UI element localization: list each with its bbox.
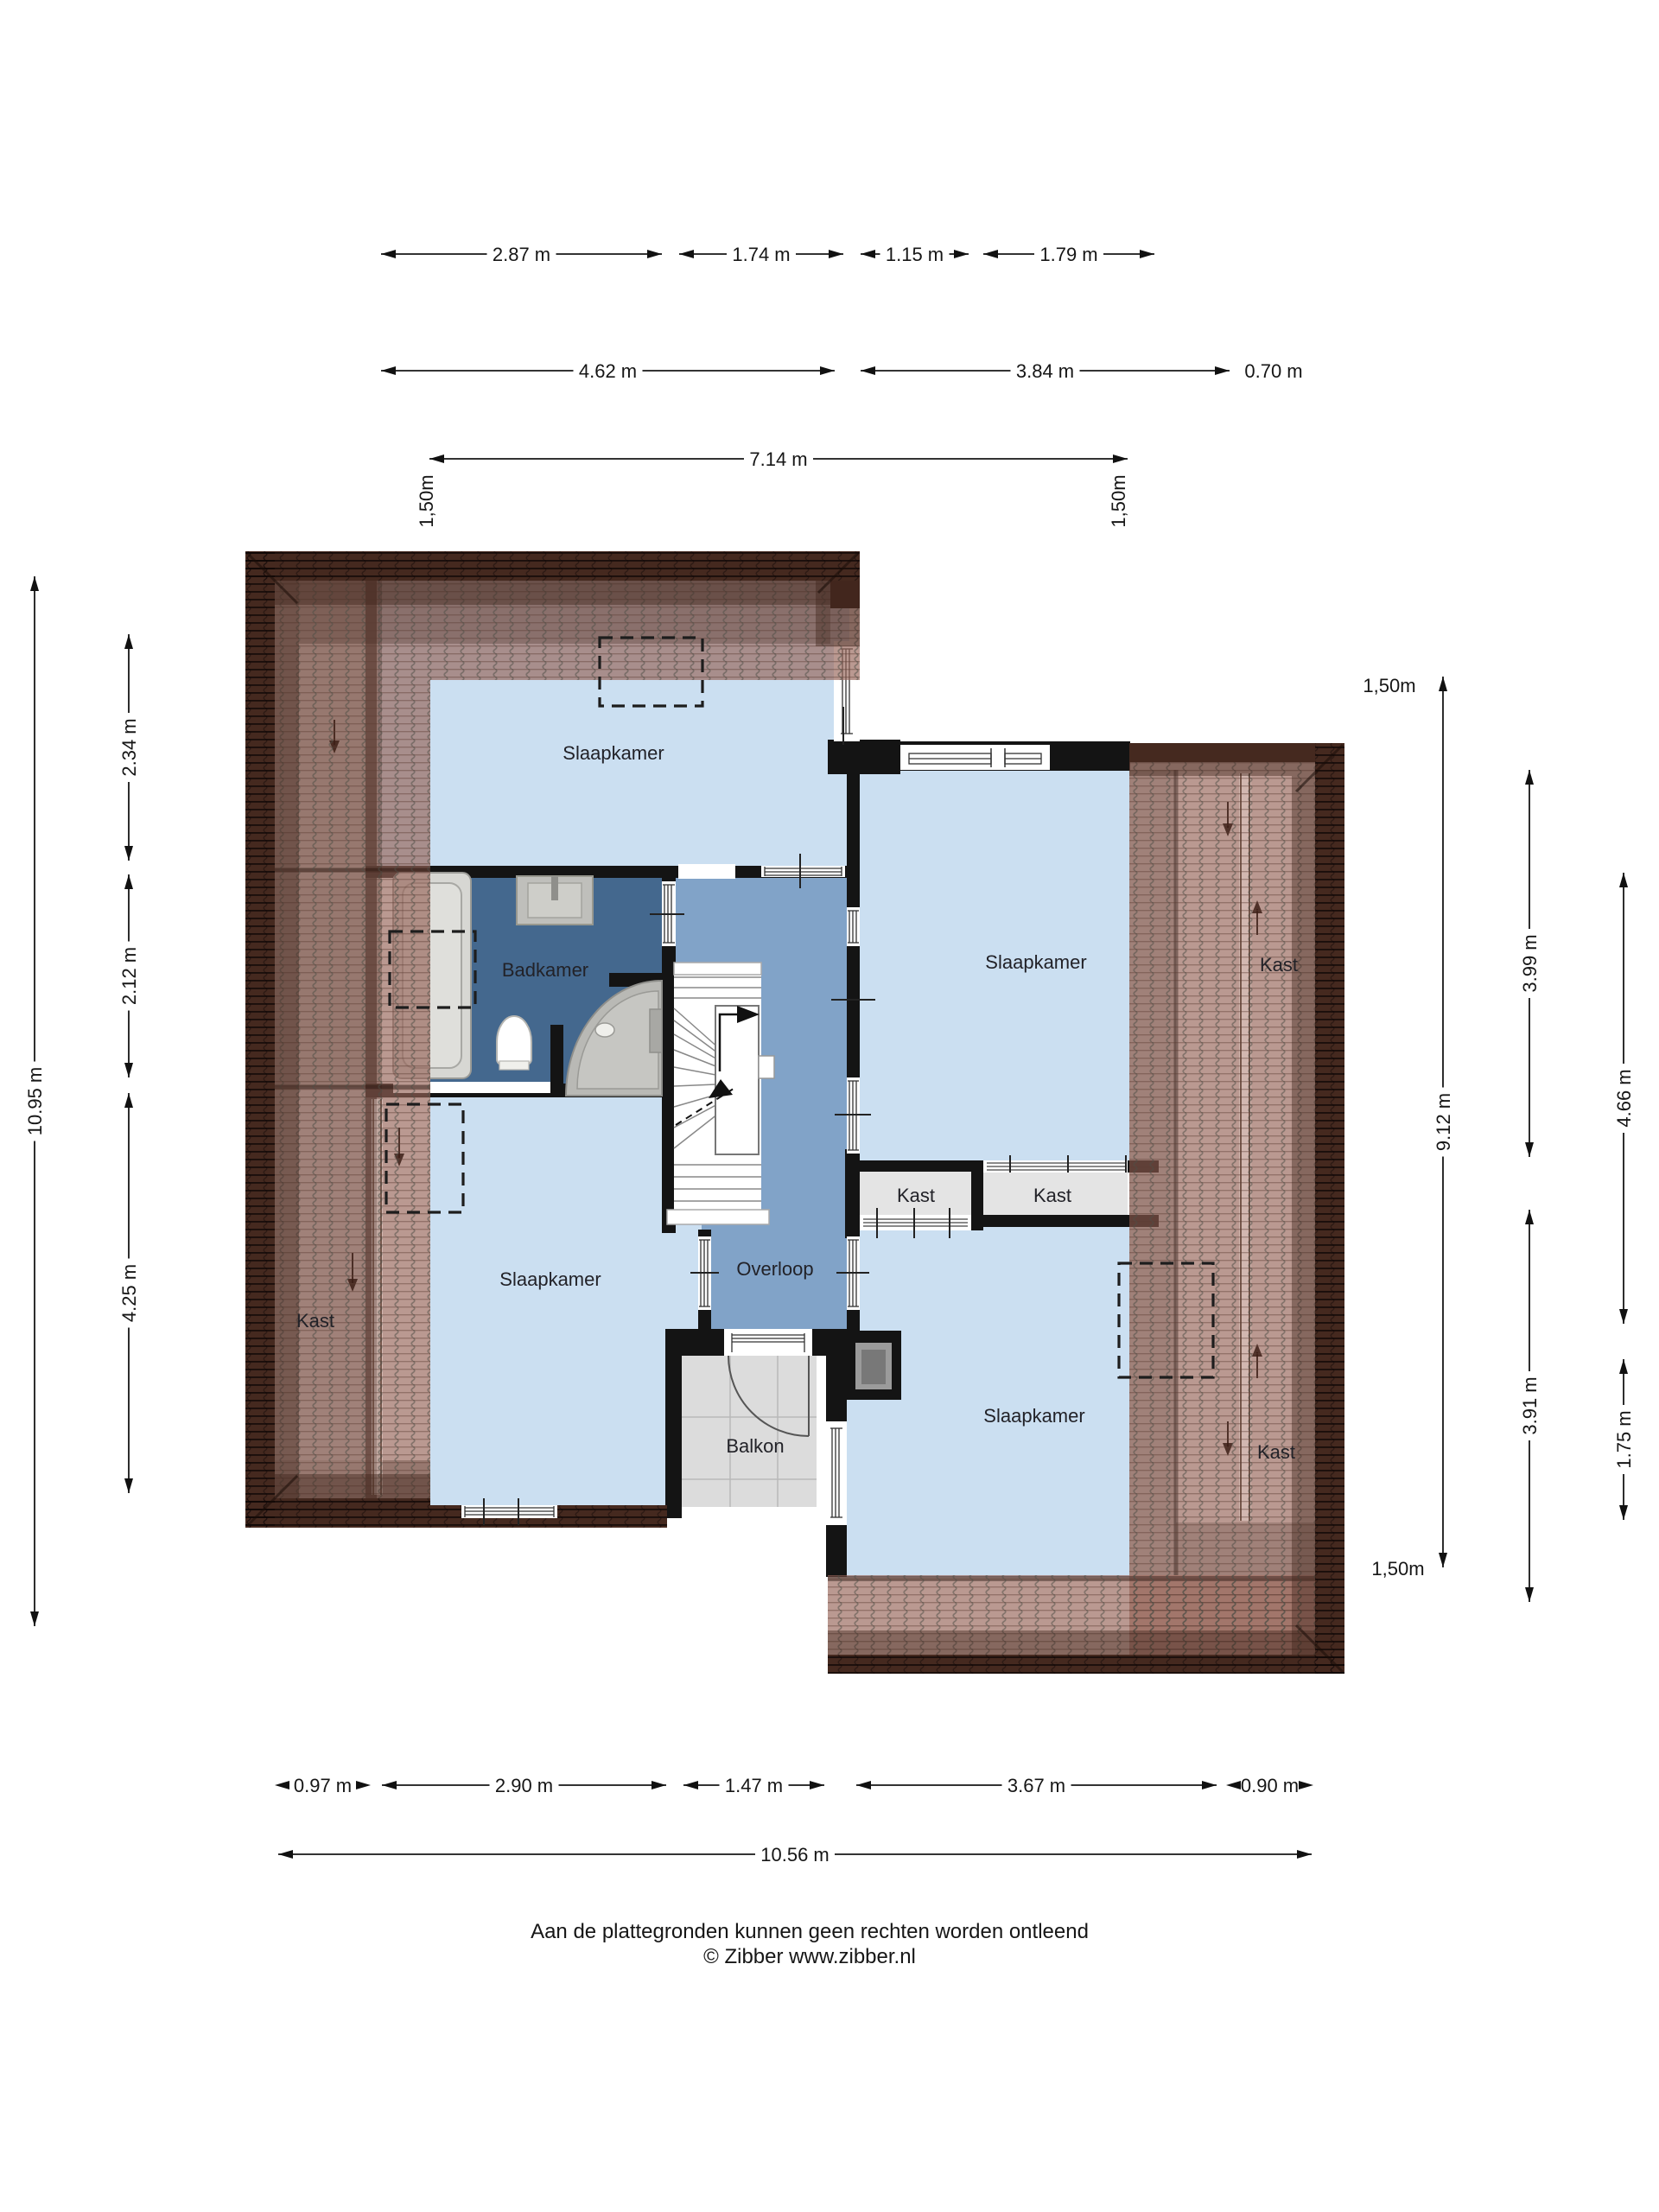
- svg-text:4.25 m: 4.25 m: [118, 1264, 140, 1322]
- svg-text:4.66 m: 4.66 m: [1613, 1069, 1635, 1127]
- svg-text:Aan de plattegronden kunnen ge: Aan de plattegronden kunnen geen rechten…: [531, 1920, 1089, 1943]
- svg-text:3.67 m: 3.67 m: [1007, 1775, 1065, 1796]
- svg-text:1.79 m: 1.79 m: [1039, 244, 1097, 265]
- svg-text:1.75 m: 1.75 m: [1613, 1410, 1635, 1468]
- svg-text:Kast: Kast: [296, 1310, 334, 1332]
- svg-text:9.12 m: 9.12 m: [1433, 1093, 1454, 1151]
- svg-text:3.99 m: 3.99 m: [1519, 934, 1541, 992]
- svg-text:3.84 m: 3.84 m: [1016, 360, 1074, 382]
- svg-text:0.90 m: 0.90 m: [1241, 1775, 1299, 1796]
- svg-text:Balkon: Balkon: [726, 1435, 784, 1457]
- svg-text:2.12 m: 2.12 m: [118, 947, 140, 1005]
- svg-text:1.74 m: 1.74 m: [732, 244, 790, 265]
- svg-text:Kast: Kast: [1260, 954, 1298, 976]
- svg-text:2.90 m: 2.90 m: [495, 1775, 553, 1796]
- svg-text:4.62 m: 4.62 m: [579, 360, 637, 382]
- svg-text:7.14 m: 7.14 m: [749, 448, 807, 470]
- svg-text:1.47 m: 1.47 m: [725, 1775, 783, 1796]
- svg-text:1,50m: 1,50m: [1371, 1558, 1424, 1580]
- svg-text:Kast: Kast: [1257, 1441, 1295, 1463]
- svg-text:1.15 m: 1.15 m: [886, 244, 944, 265]
- svg-text:0.70 m: 0.70 m: [1244, 360, 1302, 382]
- svg-text:Slaapkamer: Slaapkamer: [983, 1405, 1084, 1427]
- svg-text:Badkamer: Badkamer: [502, 959, 588, 981]
- svg-text:Overloop: Overloop: [736, 1258, 813, 1280]
- svg-text:2.87 m: 2.87 m: [493, 244, 550, 265]
- svg-text:Slaapkamer: Slaapkamer: [499, 1268, 601, 1290]
- svg-text:1,50m: 1,50m: [416, 474, 437, 527]
- svg-text:Kast: Kast: [897, 1185, 935, 1206]
- svg-text:10.95 m: 10.95 m: [24, 1067, 46, 1136]
- svg-text:0.97 m: 0.97 m: [294, 1775, 352, 1796]
- svg-text:Slaapkamer: Slaapkamer: [985, 951, 1086, 973]
- svg-text:© Zibber www.zibber.nl: © Zibber www.zibber.nl: [703, 1945, 916, 1968]
- svg-text:Kast: Kast: [1033, 1185, 1071, 1206]
- svg-text:3.91 m: 3.91 m: [1519, 1376, 1541, 1434]
- svg-text:1,50m: 1,50m: [1363, 675, 1415, 696]
- svg-text:1,50m: 1,50m: [1108, 474, 1129, 527]
- svg-text:2.34 m: 2.34 m: [118, 718, 140, 776]
- svg-text:Slaapkamer: Slaapkamer: [563, 742, 664, 764]
- svg-text:10.56 m: 10.56 m: [760, 1844, 829, 1866]
